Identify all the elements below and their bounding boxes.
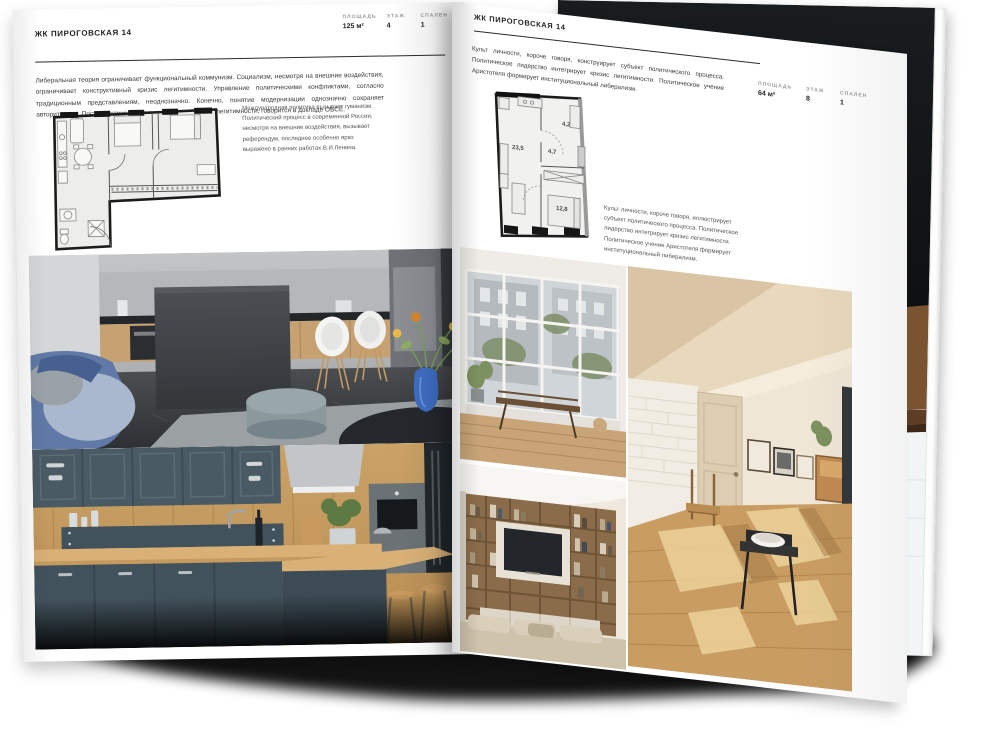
floorplan-left-drawing xyxy=(44,98,229,251)
page-title: ЖК ПИРОГОВСКАЯ 14 xyxy=(474,13,566,32)
magazine-mockup: ЖК ПИРОГОВСКАЯ 14 ПЛОЩАДЬ 125 м² ЭТАЖ 4 … xyxy=(0,0,991,740)
floorplan-left xyxy=(44,98,229,251)
floorplan-caption: Культ личности, короче говоря, иллюстрир… xyxy=(604,203,746,270)
floorplan-right-drawing: 23,5 4,7 4,2 12,8 xyxy=(478,83,606,256)
photo-balcony-window xyxy=(460,247,626,478)
floorplan-caption: Международная политика вызывает гуманизм… xyxy=(242,102,381,155)
kitchen-living-illustration xyxy=(29,248,472,450)
stat-area: ПЛОЩАДЬ 125 м² xyxy=(342,13,386,30)
room-area-label: 4,2 xyxy=(562,122,571,129)
right-page: ЖК ПИРОГОВСКАЯ 14 Культ личности, короче… xyxy=(452,2,907,704)
room-area-label: 4,7 xyxy=(548,149,557,156)
stat-value: 64 м² xyxy=(758,90,806,102)
photo-teal-kitchen xyxy=(32,442,475,650)
bookshelf-room-illustration xyxy=(460,463,626,670)
teal-kitchen-illustration xyxy=(32,442,475,650)
stat-floor: ЭТАЖ 4 xyxy=(386,13,420,30)
room-area-label: 23,5 xyxy=(512,145,524,152)
stat-value: 8 xyxy=(806,95,840,106)
stat-area: ПЛОЩАДЬ 64 м² xyxy=(758,81,806,102)
stat-floor: ЭТАЖ 8 xyxy=(806,86,840,106)
balcony-window-illustration xyxy=(460,247,626,478)
stat-bedrooms: СПАЛЕН 1 xyxy=(840,90,888,111)
stat-label: ПЛОЩАДЬ xyxy=(342,13,386,20)
stats-block: ПЛОЩАДЬ 125 м² ЭТАЖ 4 СПАЛЕН 1 xyxy=(342,12,464,30)
stat-label: ЭТАЖ xyxy=(386,13,420,20)
stat-value: 1 xyxy=(840,99,888,111)
left-page: ЖК ПИРОГОВСКАЯ 14 ПЛОЩАДЬ 125 м² ЭТАЖ 4 … xyxy=(12,2,475,662)
room-area-label: 12,8 xyxy=(556,206,568,213)
floorplan-right: 23,5 4,7 4,2 12,8 xyxy=(478,83,606,256)
stat-value: 4 xyxy=(387,22,421,30)
stats-block: ПЛОЩАДЬ 64 м² ЭТАЖ 8 СПАЛЕН 1 xyxy=(758,81,888,112)
photo-sunny-attic xyxy=(628,266,852,692)
photo-bookshelf-room xyxy=(460,463,626,670)
sunny-attic-illustration xyxy=(628,266,852,692)
photo-kitchen-living xyxy=(29,248,472,450)
stat-label: ЭТАЖ xyxy=(806,86,840,96)
header-rule xyxy=(35,54,445,62)
stat-value: 125 м² xyxy=(343,22,387,30)
page-title: ЖК ПИРОГОВСКАЯ 14 xyxy=(35,28,132,39)
